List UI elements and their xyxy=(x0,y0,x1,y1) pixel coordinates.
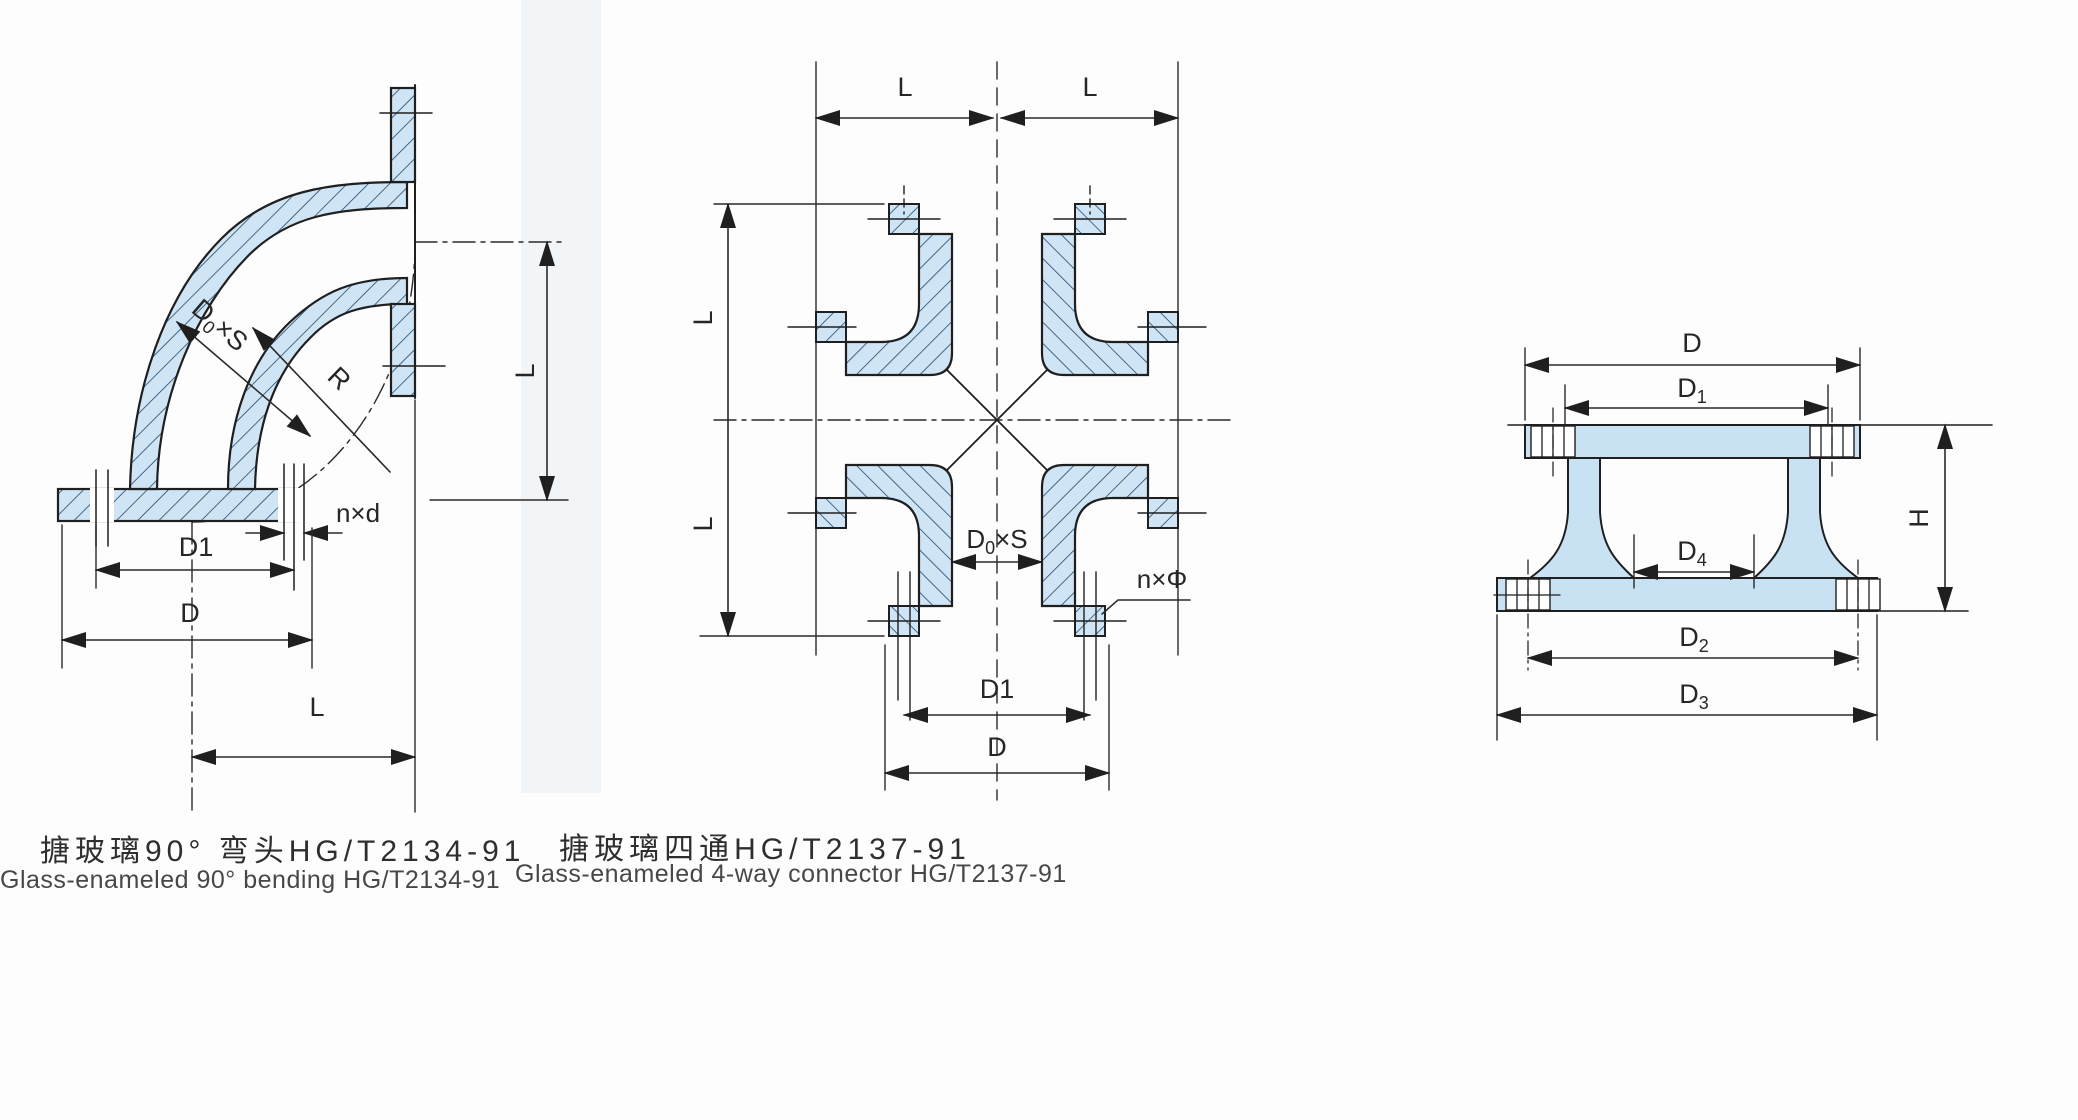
label-cross-bolt-circle: D1 xyxy=(980,674,1015,704)
elbow-bolt-gap-right xyxy=(278,488,312,522)
cross-quadrant xyxy=(788,465,952,636)
flange-left-wall xyxy=(1530,458,1634,578)
elbow-inner-wall xyxy=(228,278,407,489)
caption-elbow-en: Glass-enameled 90° bending HG/T2134-91 xyxy=(0,866,500,895)
label-cross-l-top-left: L xyxy=(897,72,912,102)
figure-flange-section: D D1 H D4 D2 D3 xyxy=(1494,328,1992,740)
cross-quadrant xyxy=(1042,186,1206,375)
elbow-bolt-gap-left xyxy=(90,488,114,522)
figure-elbow-90: D0×S R n×d D1 D L xyxy=(58,85,568,812)
label-elbow-bolt-circle: D1 xyxy=(179,532,214,562)
label-elbow-radius: R xyxy=(322,361,357,396)
dim-flange-d1: D1 xyxy=(1565,373,1828,425)
dim-cross-bolt-holes: n×Φ xyxy=(1102,564,1190,614)
label-flange-h: H xyxy=(1904,508,1934,528)
label-flange-d1: D1 xyxy=(1677,373,1707,407)
label-elbow-length-bottom: L xyxy=(309,692,324,722)
dim-elbow-length-bottom: L xyxy=(192,400,415,812)
dim-elbow-bolt-circle: D1 xyxy=(96,525,294,588)
label-cross-l-left-lower: L xyxy=(688,516,718,531)
dim-elbow-bend-radius: R xyxy=(253,328,390,472)
caption-cross-en: Glass-enameled 4-way connector HG/T2137-… xyxy=(515,860,1025,889)
label-cross-bolt-holes: n×Φ xyxy=(1137,564,1187,594)
cross-quadrant xyxy=(1042,465,1206,636)
label-elbow-bolt-holes: n×d xyxy=(336,498,380,528)
scan-band xyxy=(521,0,601,793)
label-flange-d3: D3 xyxy=(1679,679,1709,713)
caption-elbow-zh: 搪玻璃90° 弯头HG/T2134-91 xyxy=(40,826,470,870)
label-cross-l-top-right: L xyxy=(1082,72,1097,102)
label-elbow-flange-od: D xyxy=(180,598,200,628)
dim-elbow-length-right: L xyxy=(430,242,568,500)
label-cross-pipe-od: D0×S xyxy=(966,524,1027,558)
elbow-right-flange-upper xyxy=(391,88,415,182)
dim-flange-d2: D2 xyxy=(1528,622,1858,658)
technical-drawing-page: D0×S R n×d D1 D L xyxy=(0,0,2078,1115)
cross-quadrant xyxy=(788,186,952,375)
label-cross-flange-od: D xyxy=(987,732,1007,762)
figure-cross-4way: L L L L D0×S n×Φ D1 D xyxy=(688,62,1232,800)
dim-cross-bolt-circle: D1 xyxy=(904,674,1090,715)
flange-right-wall xyxy=(1754,458,1858,578)
elbow-right-flange-lower xyxy=(391,304,415,396)
elbow-outer-wall xyxy=(130,182,407,489)
label-flange-d: D xyxy=(1682,328,1702,358)
technical-drawing-svg: D0×S R n×d D1 D L xyxy=(0,0,2078,1115)
label-elbow-length-right: L xyxy=(510,363,540,378)
dim-flange-h: H xyxy=(1904,425,1945,611)
label-cross-l-left-upper: L xyxy=(688,310,718,325)
label-flange-d4: D4 xyxy=(1677,536,1707,570)
label-flange-d2: D2 xyxy=(1679,622,1709,656)
